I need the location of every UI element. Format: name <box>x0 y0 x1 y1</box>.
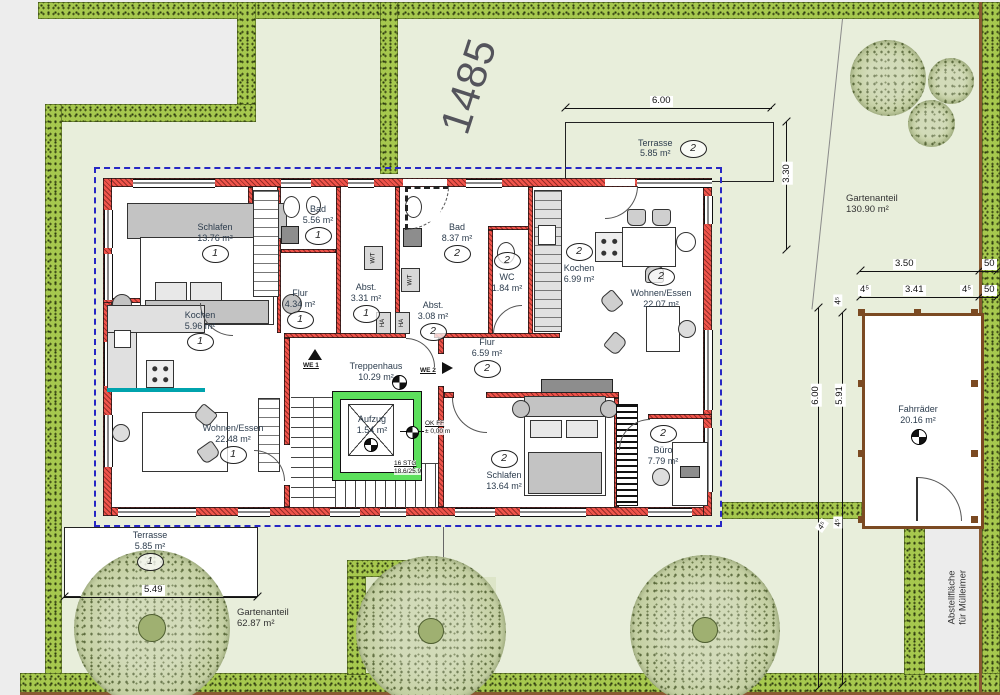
survey-point-icon <box>392 375 407 390</box>
entrance-door-opening <box>403 179 447 186</box>
room-label-schlafen-2: Schlafen13.64 m² 2 <box>468 450 540 491</box>
apartment-badge: 2 <box>491 450 518 468</box>
bed2-shelf <box>541 379 613 393</box>
window <box>704 330 713 410</box>
bed2-pillow <box>566 420 598 438</box>
hedge-left <box>45 104 62 675</box>
we1-arrow-icon <box>308 349 322 360</box>
terrace-door-opening <box>605 179 635 186</box>
chair <box>627 209 646 226</box>
hedge-path-left <box>904 519 925 675</box>
ha-box: HA <box>395 312 410 334</box>
apartment-badge: 2 <box>474 360 501 378</box>
room-label-bad-1: Bad5.56 m² 1 <box>295 204 341 245</box>
bed2-headboard <box>524 396 606 418</box>
chair <box>676 232 696 252</box>
apartment-badge: 2 <box>420 323 447 341</box>
hedge-topleft-horizontal <box>45 104 256 122</box>
window <box>348 179 374 188</box>
apartment-badge: 2 <box>680 140 707 158</box>
window <box>238 508 270 517</box>
window <box>104 415 113 467</box>
shed-post <box>858 450 865 457</box>
window <box>104 210 113 248</box>
bed1-pillow <box>190 282 222 302</box>
window <box>330 508 360 517</box>
dim-shed-row1-offset: 50 <box>982 259 997 270</box>
terrace-bottom-label: Terrasse 5.85 m² 1 <box>120 530 180 571</box>
shed-post <box>914 309 921 316</box>
survey-point-icon <box>911 429 927 445</box>
dim-shed-row2-left: 4⁵ <box>858 285 871 296</box>
hedge-top <box>38 2 982 19</box>
office-chair <box>652 468 670 486</box>
window <box>281 179 311 188</box>
dim-terrace1-width: 5.49 <box>142 585 165 596</box>
terrace-top-label: Terrasse 5.85 m² 2 <box>638 138 707 158</box>
dim-line <box>818 308 819 688</box>
apartment-badge: 2 <box>566 243 593 261</box>
window <box>466 179 502 188</box>
room-label-bad-2: Bad8.37 m² 2 <box>434 222 480 263</box>
tree-left-trunk <box>138 614 166 642</box>
window <box>520 508 586 517</box>
desk-2 <box>646 306 680 352</box>
shed-post <box>971 309 978 316</box>
dim-garden-height: 6.00 <box>811 384 822 407</box>
stair-note-line1: 16 STG <box>394 460 416 467</box>
bed2-pillow <box>530 420 562 438</box>
parcel-boundary-short <box>443 527 444 560</box>
buero-screen <box>680 466 700 478</box>
nightstand <box>512 400 530 418</box>
dim-line <box>842 313 843 685</box>
wall-inner <box>488 226 533 230</box>
dim-line <box>64 597 257 598</box>
room-label-wohnen-2: Wohnen/Essen22.07 m² 2 <box>618 268 704 309</box>
shed-post <box>858 380 865 387</box>
dim-shed-row2: 3.41 <box>903 285 926 296</box>
window <box>704 196 713 224</box>
apartment-badge: 2 <box>650 425 677 443</box>
stair-walkline <box>313 397 314 507</box>
level-note-line2: ± 0,00 m <box>425 428 450 435</box>
room-label-abst-1: Abst.3.31 m² 1 <box>344 282 388 323</box>
apartment-badge: 2 <box>444 245 471 263</box>
shed-post <box>971 450 978 457</box>
tree-right-trunk <box>692 617 718 643</box>
dim-line <box>565 108 772 109</box>
window <box>118 508 196 517</box>
apartment-badge: 1 <box>353 305 380 323</box>
room-label-flur-1: Flur4.34 m² 1 <box>278 288 322 329</box>
chair <box>652 209 671 226</box>
bush-small-1 <box>928 58 974 104</box>
dim-line <box>786 122 787 250</box>
dining-table-2 <box>622 227 676 267</box>
window <box>637 179 712 188</box>
dim-gap-bottom: 4⁵ <box>833 517 842 529</box>
window <box>104 254 113 300</box>
washer-box: W/T <box>401 268 420 292</box>
apartment-badge: 1 <box>287 311 314 329</box>
sink-icon <box>114 330 131 348</box>
dim-terrace-width: 6.00 <box>650 96 673 107</box>
we2-label: WE 2 <box>420 367 436 374</box>
shed-post <box>971 380 978 387</box>
shed-post <box>858 516 865 523</box>
dim-gap-top: 4⁵ <box>833 295 842 307</box>
counter-edge <box>107 388 205 392</box>
we1-label: WE 1 <box>303 362 319 369</box>
closet <box>253 190 279 297</box>
garden-share-left-label: Gartenanteil 62.87 m² <box>237 607 289 630</box>
we2-arrow-icon <box>442 362 453 374</box>
window <box>648 508 692 517</box>
level-marker-icon <box>406 426 419 439</box>
window <box>380 508 406 517</box>
garden-share-right-label: Gartenanteil 130.90 m² <box>846 193 898 216</box>
room-label-abst-2: Abst.3.08 m² 2 <box>410 300 456 341</box>
dim-shed-height: 5.91 <box>835 384 846 407</box>
window <box>133 179 215 188</box>
office-chair <box>678 320 696 338</box>
bike-shed-label: Fahrräder 20.16 m² <box>888 404 948 425</box>
bin-area-label: Abstellfläche für Mülleimer <box>947 542 970 652</box>
tree-middle-trunk <box>418 618 444 644</box>
shed-post <box>858 309 865 316</box>
bush-large <box>850 40 926 116</box>
room-label-wohnen-1: Wohnen/Essen22.48 m² 1 <box>192 423 274 464</box>
stove-icon <box>146 360 174 388</box>
room-label-flur-2: Flur6.59 m² 2 <box>465 337 509 378</box>
shower-icon <box>403 228 422 247</box>
room-label-kochen-1: Kochen5.96 m² 1 <box>170 310 230 351</box>
room-label-aufzug: Aufzug1.54 m² <box>346 414 398 435</box>
hedge-right <box>982 2 1000 693</box>
office-chair <box>112 424 130 442</box>
dim-terrace-depth: 3.30 <box>782 162 793 185</box>
wall-stair-left-b <box>284 485 290 507</box>
bed1-pillow <box>155 282 187 302</box>
stair-note-line2: 18.6/25.9 <box>394 468 421 475</box>
level-note-line1: OK FF <box>425 420 444 427</box>
apartment-badge: 1 <box>220 446 247 464</box>
dim-shed-row1: 3.50 <box>893 259 916 270</box>
hedge-entrance <box>380 2 398 174</box>
wall-stair-right-b <box>438 386 444 507</box>
bush-small-2 <box>908 100 955 147</box>
wall-buero-top <box>648 414 712 419</box>
site-plan: 1485 <box>0 0 1000 695</box>
apartment-badge: 1 <box>187 333 214 351</box>
apartment-badge: 1 <box>137 553 164 571</box>
room-label-schlafen-1: Schlafen13.76 m² 1 <box>178 222 252 263</box>
room-label-buero-2: Büro7.79 m² 2 <box>628 425 698 466</box>
window <box>455 508 495 517</box>
sink-icon <box>538 225 556 245</box>
washer-box: W/T <box>364 246 383 270</box>
apartment-badge: 2 <box>494 252 521 270</box>
apartment-badge: 2 <box>648 268 675 286</box>
wall-stair-left-a <box>284 338 290 445</box>
room-label-wc-2: WC1.84 m² 2 <box>485 252 529 293</box>
survey-point-icon <box>364 438 378 452</box>
apartment-badge: 1 <box>202 245 229 263</box>
dim-shed-row2-offset: 50 <box>982 285 997 296</box>
dim-shed-row2-right: 4⁵ <box>960 285 973 296</box>
room-label-kochen-2: Kochen6.99 m² 2 <box>556 243 602 284</box>
shed-post <box>971 516 978 523</box>
wall-inner <box>281 249 336 253</box>
apartment-badge: 1 <box>305 227 332 245</box>
